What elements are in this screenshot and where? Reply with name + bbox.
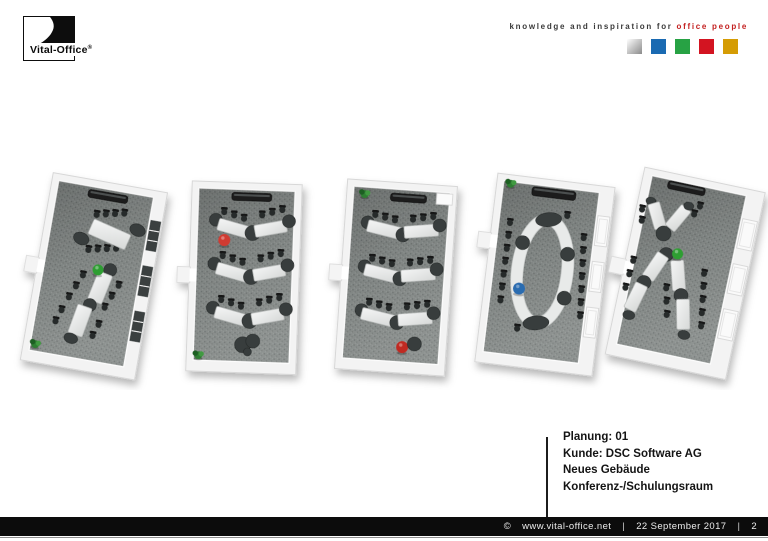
- footer-separator: |: [622, 521, 625, 532]
- footer-bar: © www.vital-office.net | 22 September 20…: [0, 517, 768, 536]
- palette-square-green: [675, 39, 690, 54]
- logo-brand-text: Vital-Office®: [29, 43, 94, 56]
- info-gebaeude: Neues Gebäude: [563, 462, 713, 479]
- footer-date: 22 September 2017: [636, 521, 726, 532]
- palette-squares: [627, 39, 738, 54]
- floorplan-variant-1-two-long-tables: [8, 171, 167, 380]
- footer-url: www.vital-office.net: [522, 521, 611, 532]
- palette-square-gold: [723, 39, 738, 54]
- info-kunde: Kunde: DSC Software AG: [563, 446, 713, 463]
- info-raum: Konferenz-/Schulungsraum: [563, 479, 713, 496]
- footer-page-number: 2: [751, 521, 757, 532]
- info-rule: [546, 437, 548, 517]
- floorplan-variant-2-chevron-rows: [174, 180, 303, 374]
- floorplans-strip: [0, 162, 768, 390]
- footer-copyright: ©: [504, 521, 511, 532]
- palette-square-silver: [627, 39, 642, 54]
- tagline: knowledge and inspiration for office peo…: [510, 22, 748, 31]
- footer-separator: |: [737, 521, 740, 532]
- floorplan-variant-5-y-tables: [591, 164, 765, 379]
- tagline-black: knowledge and inspiration for: [510, 22, 673, 31]
- palette-square-red: [699, 39, 714, 54]
- floorplan-variant-3-classroom-rows: [322, 178, 457, 376]
- vital-office-logo: Vital-Office®: [23, 16, 75, 61]
- info-planung: Planung: 01: [563, 429, 713, 446]
- floorplan-variant-4-oval-conference: [463, 172, 615, 376]
- palette-square-blue: [651, 39, 666, 54]
- tagline-red: office people: [677, 22, 748, 31]
- registered-mark: ®: [88, 45, 93, 51]
- plan-info-block: Planung: 01 Kunde: DSC Software AG Neues…: [563, 429, 713, 495]
- footer-bottom-line: [0, 537, 768, 539]
